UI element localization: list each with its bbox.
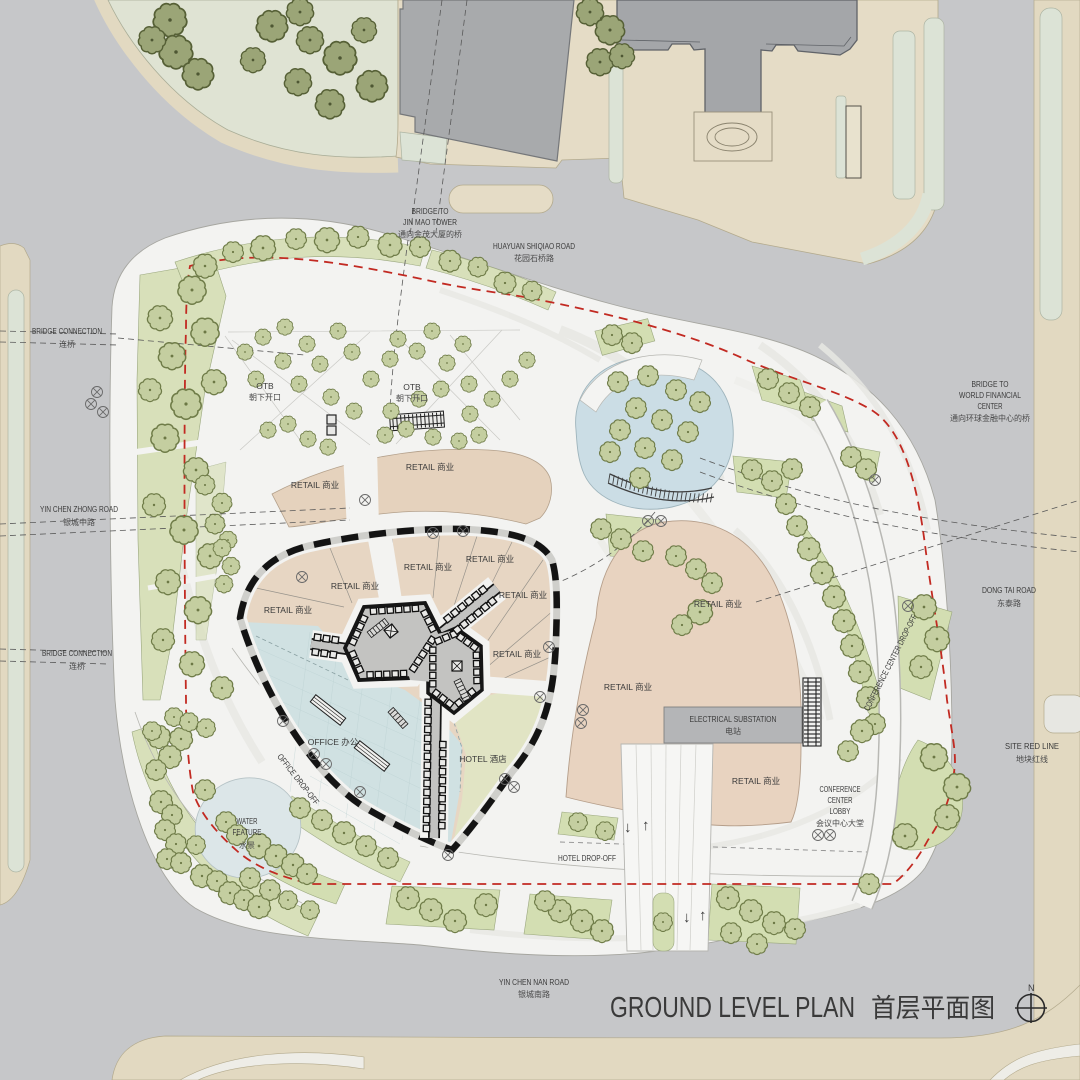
svg-text:RETAIL 商业: RETAIL 商业: [331, 581, 379, 591]
svg-text:首层平面图: 首层平面图: [871, 993, 995, 1023]
svg-text:RETAIL 商业: RETAIL 商业: [694, 599, 742, 609]
svg-text:通向金茂大厦的桥: 通向金茂大厦的桥: [398, 229, 462, 239]
svg-text:OTB: OTB: [403, 382, 421, 392]
svg-text:水景: 水景: [239, 840, 255, 850]
svg-text:↓: ↓: [624, 819, 632, 836]
svg-text:CENTER: CENTER: [978, 401, 1003, 411]
svg-text:银城南路: 银城南路: [518, 989, 550, 999]
svg-text:朝下开口: 朝下开口: [396, 394, 428, 403]
svg-text:WATER: WATER: [237, 816, 258, 826]
svg-text:YIN CHEN ZHONG ROAD: YIN CHEN ZHONG ROAD: [40, 504, 118, 514]
svg-text:BRIDGE TO: BRIDGE TO: [412, 206, 449, 216]
svg-text:东泰路: 东泰路: [997, 598, 1021, 608]
svg-text:HUAYUAN SHIQIAO ROAD: HUAYUAN SHIQIAO ROAD: [493, 241, 575, 251]
svg-text:SITE RED LINE: SITE RED LINE: [1005, 741, 1059, 751]
svg-text:朝下开口: 朝下开口: [249, 393, 281, 402]
svg-text:JIN MAO TOWER: JIN MAO TOWER: [403, 217, 457, 227]
svg-text:银城中路: 银城中路: [63, 517, 95, 527]
svg-text:WORLD FINANCIAL: WORLD FINANCIAL: [959, 390, 1021, 400]
svg-text:RETAIL 商业: RETAIL 商业: [406, 462, 454, 472]
svg-text:RETAIL 商业: RETAIL 商业: [732, 776, 780, 786]
svg-text:LOBBY: LOBBY: [830, 806, 851, 816]
svg-text:连桥: 连桥: [69, 661, 85, 671]
svg-text:RETAIL 商业: RETAIL 商业: [466, 554, 514, 564]
svg-text:连桥: 连桥: [59, 339, 75, 349]
svg-text:↓: ↓: [683, 909, 691, 926]
svg-text:YIN CHEN NAN ROAD: YIN CHEN NAN ROAD: [499, 977, 569, 987]
svg-text:HOTEL DROP-OFF: HOTEL DROP-OFF: [558, 853, 616, 863]
svg-text:FEATURE: FEATURE: [233, 827, 262, 837]
svg-text:↑: ↑: [699, 907, 707, 924]
svg-text:BRIDGE TO: BRIDGE TO: [972, 379, 1009, 389]
svg-text:花园石桥路: 花园石桥路: [514, 253, 554, 263]
svg-text:RETAIL 商业: RETAIL 商业: [499, 590, 547, 600]
svg-text:DONG TAI ROAD: DONG TAI ROAD: [982, 585, 1036, 595]
svg-text:电站: 电站: [725, 726, 741, 736]
svg-text:HOTEL 酒店: HOTEL 酒店: [459, 754, 507, 764]
svg-text:RETAIL 商业: RETAIL 商业: [404, 562, 452, 572]
svg-text:OFFICE 办公: OFFICE 办公: [308, 737, 359, 747]
svg-text:地块红线: 地块红线: [1016, 754, 1048, 764]
svg-text:CENTER: CENTER: [828, 795, 853, 805]
svg-text:通向环球金融中心的桥: 通向环球金融中心的桥: [950, 413, 1030, 423]
svg-text:GROUND LEVEL PLAN: GROUND LEVEL PLAN: [610, 992, 855, 1024]
svg-text:N: N: [1028, 983, 1035, 993]
svg-text:CONFERENCE: CONFERENCE: [820, 784, 861, 794]
svg-text:OTB: OTB: [256, 381, 274, 391]
svg-text:RETAIL 商业: RETAIL 商业: [264, 605, 312, 615]
svg-text:会议中心大堂: 会议中心大堂: [816, 818, 864, 828]
svg-text:↑: ↑: [642, 817, 650, 834]
svg-text:RETAIL 商业: RETAIL 商业: [493, 649, 541, 659]
svg-text:BRIDGE CONNECTION: BRIDGE CONNECTION: [42, 648, 112, 658]
svg-text:RETAIL 商业: RETAIL 商业: [291, 480, 339, 490]
svg-text:ELECTRICAL SUBSTATION: ELECTRICAL SUBSTATION: [690, 714, 777, 724]
svg-text:RETAIL 商业: RETAIL 商业: [604, 682, 652, 692]
svg-text:BRIDGE CONNECTION: BRIDGE CONNECTION: [32, 326, 102, 336]
